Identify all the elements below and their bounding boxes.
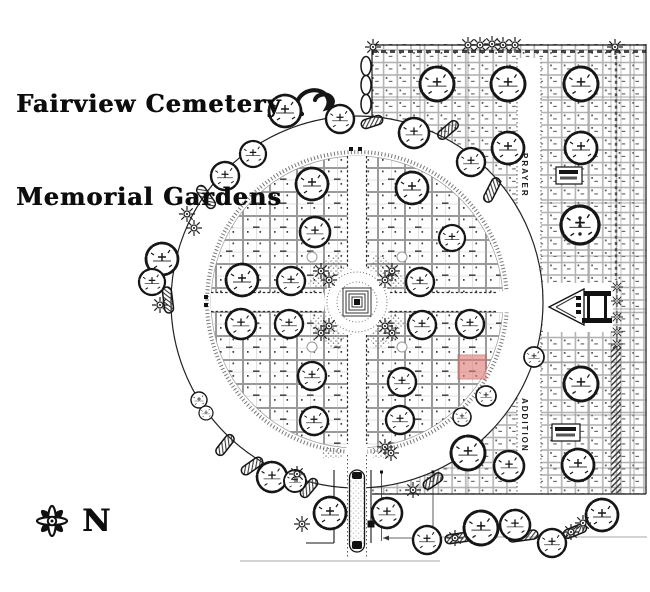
- shrub-icon: [313, 263, 329, 279]
- tree-icon: [453, 408, 471, 426]
- shrub-icon: [447, 530, 463, 546]
- shrub-icon: [152, 297, 168, 313]
- shrub-icon: [383, 445, 399, 461]
- tree-icon: [326, 105, 354, 133]
- tree-icon: [564, 367, 598, 401]
- tree-icon: [406, 268, 434, 296]
- shrub-icon: [507, 37, 523, 53]
- tree-icon: [300, 217, 330, 247]
- tree-icon: [314, 497, 346, 529]
- shrub-icon: [384, 263, 400, 279]
- north-label: N: [82, 503, 110, 539]
- tree-icon: [420, 67, 454, 101]
- map-title-line1: Fairview Cemetery: [16, 88, 282, 119]
- tree-icon: [399, 118, 429, 148]
- sign-box: [556, 167, 582, 184]
- addition-road-label: ADDITION: [520, 398, 529, 453]
- tree-icon: [300, 407, 328, 435]
- tree-icon: [413, 526, 441, 554]
- tree-icon: [456, 310, 484, 338]
- tree-icon: [439, 225, 465, 251]
- highlighted-plot[interactable]: [458, 355, 486, 379]
- cemetery-map-page: Fairview Cemetery Memorial Gardens PRAYE…: [0, 0, 650, 592]
- tree-icon: [464, 511, 498, 545]
- shrub-icon: [405, 482, 421, 498]
- prayer-road-label: PRAYER: [520, 153, 529, 198]
- sign-box: [552, 424, 580, 441]
- tree-icon: [562, 449, 594, 481]
- tree-icon: [396, 172, 428, 204]
- shrub-icon: [472, 37, 488, 53]
- tree-icon: [538, 529, 566, 557]
- bush-icon: [361, 57, 371, 76]
- tree-icon: [257, 462, 287, 492]
- flower-icon: [611, 311, 623, 323]
- tree-icon: [408, 311, 436, 339]
- tree-icon: [565, 132, 597, 164]
- flower-icon: [611, 338, 623, 350]
- tree-icon: [388, 368, 416, 396]
- map-title: Fairview Cemetery Memorial Gardens: [16, 26, 282, 274]
- shrub-icon: [365, 39, 381, 55]
- flower-icon: [611, 295, 623, 307]
- hedge-icon: [214, 433, 236, 457]
- tree-icon: [494, 451, 524, 481]
- tree-icon: [586, 499, 618, 531]
- shrub-icon: [321, 318, 337, 334]
- shrub-icon: [575, 515, 591, 531]
- tree-icon: [199, 406, 213, 420]
- shrub-icon: [321, 272, 337, 288]
- tree-icon: [500, 510, 530, 540]
- shrub-icon: [289, 466, 305, 482]
- tree-icon: [457, 148, 485, 176]
- map-title-line2: Memorial Gardens: [16, 181, 282, 212]
- tree-icon: [451, 436, 485, 470]
- flower-icon: [611, 326, 623, 338]
- tree-icon: [476, 386, 496, 406]
- shrub-icon: [377, 318, 393, 334]
- tree-icon: [298, 362, 326, 390]
- tree-icon: [296, 168, 328, 200]
- tree-icon: [564, 67, 598, 101]
- flower-icon: [611, 281, 623, 293]
- tree-icon: [491, 67, 525, 101]
- shrub-icon: [294, 516, 310, 532]
- bush-icon: [361, 76, 371, 95]
- tree-icon: [524, 347, 544, 367]
- shrub-icon: [563, 524, 579, 540]
- shrub-icon: [377, 272, 393, 288]
- tree-icon: [275, 310, 303, 338]
- bush-icon: [361, 95, 371, 114]
- tree-icon: [226, 309, 256, 339]
- median-island: [350, 470, 365, 552]
- tree-icon: [386, 406, 414, 434]
- compass-rose-icon: [37, 506, 67, 536]
- shrub-icon: [607, 39, 623, 55]
- tree-icon: [372, 498, 402, 528]
- hatched-strip: [611, 345, 621, 493]
